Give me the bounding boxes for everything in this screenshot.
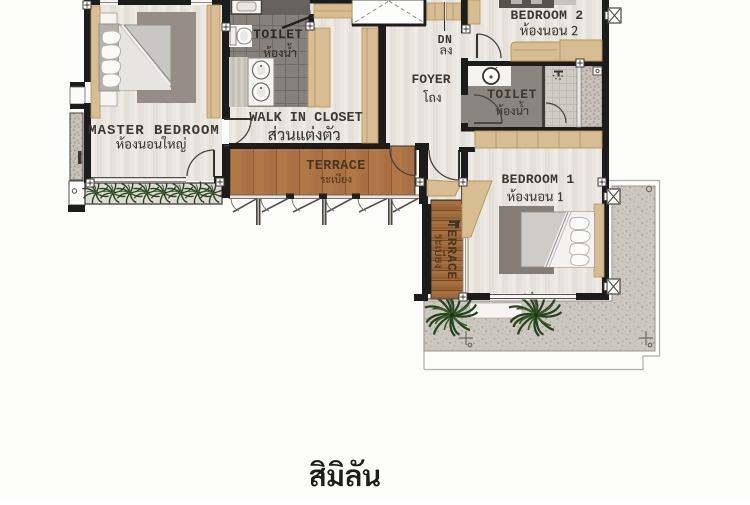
svg-text:BEDROOM 2: BEDROOM 2 [511, 8, 584, 23]
svg-text:WALK IN CLOSET: WALK IN CLOSET [249, 111, 362, 126]
svg-text:TERRACE: TERRACE [444, 221, 459, 280]
svg-text:MASTER BEDROOM: MASTER BEDROOM [88, 123, 220, 139]
svg-text:TERRACE: TERRACE [306, 159, 366, 174]
svg-text:BEDROOM 1: BEDROOM 1 [502, 172, 575, 187]
svg-text:TOILET: TOILET [487, 87, 537, 102]
svg-text:FOYER: FOYER [411, 72, 450, 87]
svg-text:DN: DN [438, 34, 453, 47]
svg-text:TOILET: TOILET [253, 27, 303, 42]
